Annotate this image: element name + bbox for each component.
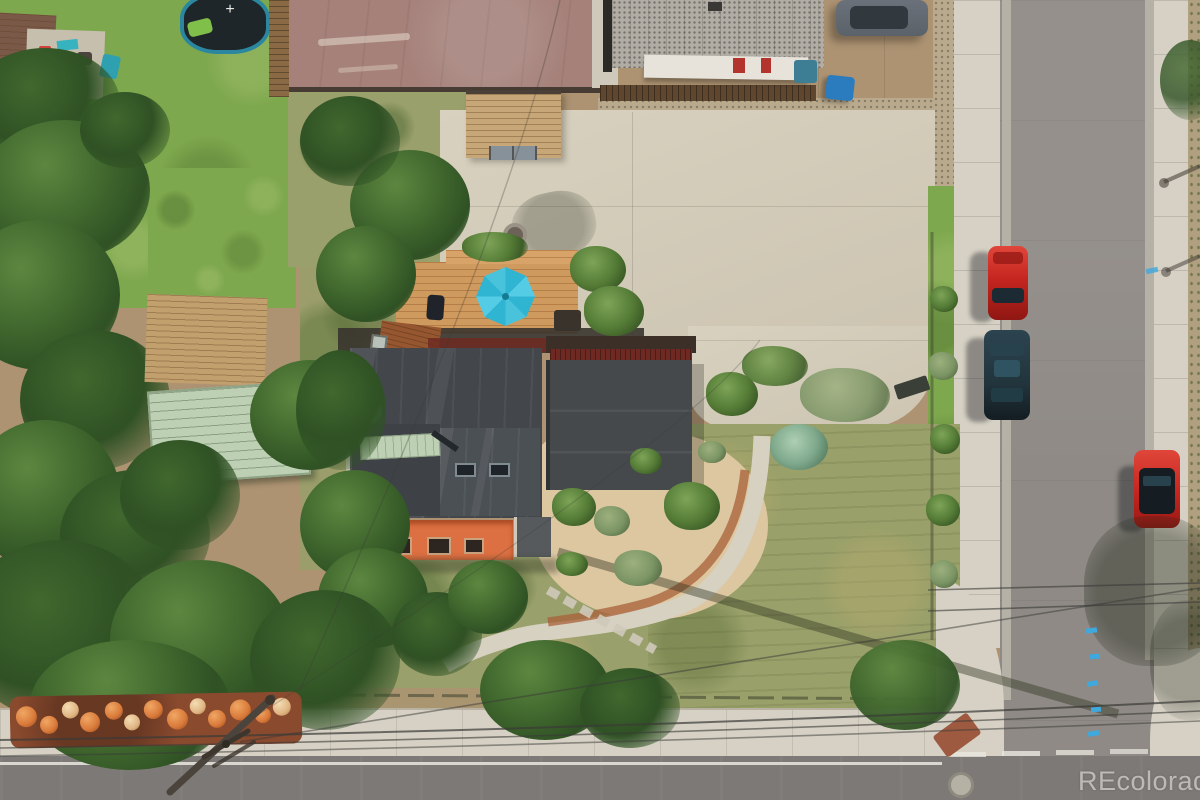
power-lines-overlay: [0, 0, 1200, 800]
watermark: REcolorado: [1078, 766, 1200, 797]
aerial-photo: +: [0, 0, 1200, 800]
